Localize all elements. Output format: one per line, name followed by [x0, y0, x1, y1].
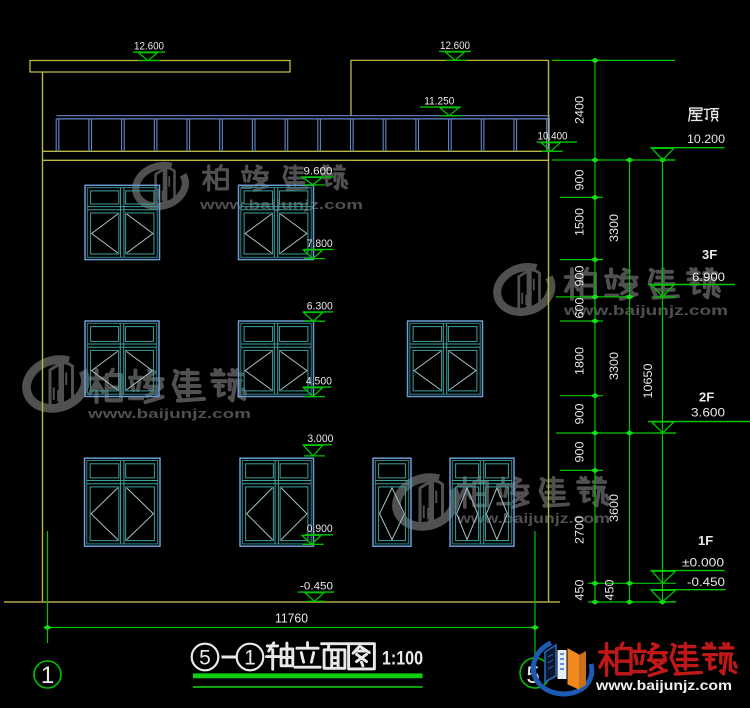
svg-text:10650: 10650	[643, 364, 655, 399]
svg-text:0.900: 0.900	[307, 523, 333, 535]
svg-text:www.baijunjz.com: www.baijunjz.com	[595, 678, 732, 693]
svg-text:±0.000: ±0.000	[682, 558, 724, 570]
svg-text:3F: 3F	[702, 247, 717, 262]
svg-text:1500: 1500	[575, 208, 587, 236]
svg-text:2400: 2400	[575, 96, 587, 124]
svg-text:1: 1	[41, 662, 54, 689]
svg-text:3.000: 3.000	[307, 433, 333, 445]
svg-text:11760: 11760	[275, 612, 308, 626]
svg-text:12.600: 12.600	[134, 41, 164, 53]
svg-text:900: 900	[575, 442, 587, 463]
svg-text:9.600: 9.600	[304, 165, 333, 177]
svg-text:450: 450	[605, 580, 617, 601]
svg-text:12.600: 12.600	[440, 40, 470, 52]
svg-text:-0.450: -0.450	[300, 581, 333, 593]
svg-text:900: 900	[575, 266, 587, 287]
svg-text:www.baijunjz.com: www.baijunjz.com	[87, 406, 251, 421]
svg-text:1800: 1800	[575, 347, 587, 375]
svg-text:4.500: 4.500	[306, 376, 332, 388]
svg-text:1F: 1F	[698, 533, 713, 548]
svg-text:450: 450	[575, 580, 587, 601]
svg-text:3.600: 3.600	[691, 408, 725, 420]
svg-text:3600: 3600	[609, 494, 621, 522]
svg-text:2700: 2700	[575, 516, 587, 544]
svg-text:-0.450: -0.450	[687, 577, 725, 589]
svg-text:10.200: 10.200	[687, 134, 725, 146]
svg-text:10.400: 10.400	[538, 131, 568, 143]
svg-text:www.baijunjz.com: www.baijunjz.com	[563, 303, 728, 318]
svg-text:1:100: 1:100	[382, 649, 423, 670]
svg-text:6.900: 6.900	[692, 272, 725, 284]
svg-text:1: 1	[244, 647, 256, 670]
svg-text:900: 900	[575, 404, 587, 425]
svg-text:3300: 3300	[609, 352, 621, 380]
svg-text:6.300: 6.300	[307, 300, 333, 312]
svg-text:600: 600	[575, 298, 587, 319]
svg-text:3300: 3300	[609, 214, 621, 242]
svg-text:5: 5	[199, 647, 211, 670]
svg-text:2F: 2F	[699, 390, 714, 405]
svg-text:900: 900	[575, 170, 587, 191]
svg-text:7.800: 7.800	[307, 238, 333, 250]
svg-text:11.250: 11.250	[424, 96, 454, 108]
